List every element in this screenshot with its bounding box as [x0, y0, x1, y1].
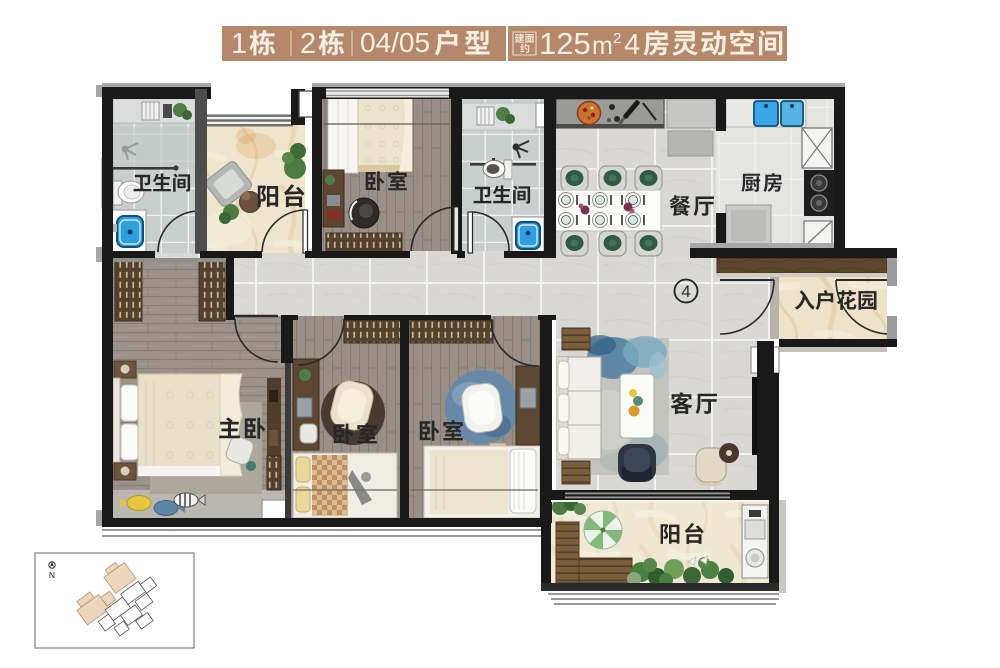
svg-text:04/05: 04/05: [360, 27, 430, 58]
svg-text:N: N: [49, 570, 55, 580]
svg-text:1: 1: [231, 28, 247, 60]
svg-text:2: 2: [613, 30, 621, 47]
svg-text:m: m: [592, 32, 613, 60]
svg-text:4: 4: [624, 29, 640, 61]
svg-text:4: 4: [681, 282, 690, 301]
svg-text:125: 125: [539, 26, 591, 61]
svg-text:2: 2: [300, 28, 316, 60]
